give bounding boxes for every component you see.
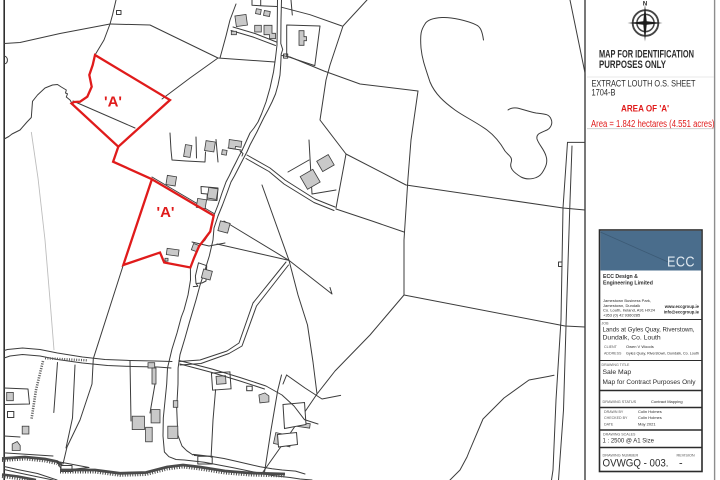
svg-text:DRAWN BY: DRAWN BY	[604, 410, 624, 414]
svg-text:DRAWING SCALES: DRAWING SCALES	[603, 433, 636, 437]
svg-text:Colin Holmes: Colin Holmes	[638, 415, 662, 420]
svg-text:Lands at Gyles Quay, Riverstow: Lands at Gyles Quay, Riverstown,	[603, 327, 695, 334]
svg-text:Contract Mapping: Contract Mapping	[651, 399, 683, 404]
svg-text:-: -	[679, 458, 683, 470]
svg-text:JOB: JOB	[602, 322, 610, 326]
svg-text:Map for Contract Purposes Only: Map for Contract Purposes Only	[603, 379, 697, 386]
svg-text:Dundalk, Co. Louth: Dundalk, Co. Louth	[603, 335, 661, 342]
svg-text:CLIENT: CLIENT	[604, 345, 618, 349]
svg-text:N: N	[643, 2, 647, 8]
svg-text:May 2021: May 2021	[638, 422, 656, 427]
svg-text:PURPOSES ONLY: PURPOSES ONLY	[599, 59, 666, 71]
svg-text:OVWGQ - 003.: OVWGQ - 003.	[603, 458, 669, 470]
svg-text:DRAWING STATUS: DRAWING STATUS	[603, 400, 637, 404]
svg-text:1704-B: 1704-B	[592, 88, 616, 99]
svg-text:ADDRESS: ADDRESS	[604, 352, 622, 356]
svg-text:ECC Design &: ECC Design &	[603, 274, 638, 280]
svg-text:'A': 'A'	[104, 93, 122, 110]
svg-text:www.eccgroup.ie: www.eccgroup.ie	[664, 304, 700, 309]
svg-text:'A': 'A'	[157, 204, 175, 221]
svg-text:Engineering Limited: Engineering Limited	[603, 281, 653, 287]
svg-text:AREA OF 'A': AREA OF 'A'	[621, 104, 669, 115]
svg-text:Sale Map: Sale Map	[603, 369, 632, 376]
svg-text:+353 (0) 42 9360285: +353 (0) 42 9360285	[603, 312, 641, 317]
svg-text:Owen V Woods: Owen V Woods	[626, 344, 654, 349]
svg-text:ECC: ECC	[667, 255, 695, 271]
svg-text:info@eccgroup.ie: info@eccgroup.ie	[664, 310, 700, 315]
svg-text:Colin Holmes: Colin Holmes	[638, 409, 662, 414]
svg-text:1 : 2500 @ A1 Size: 1 : 2500 @ A1 Size	[603, 439, 655, 445]
svg-text:DATE: DATE	[604, 423, 614, 427]
svg-text:DRAWING TITLE: DRAWING TITLE	[602, 363, 631, 367]
svg-text:CHECKED BY: CHECKED BY	[604, 416, 628, 420]
svg-text:Gyles Quay, Riverstown, Dundal: Gyles Quay, Riverstown, Dundalk, Co. Lou…	[626, 351, 699, 356]
